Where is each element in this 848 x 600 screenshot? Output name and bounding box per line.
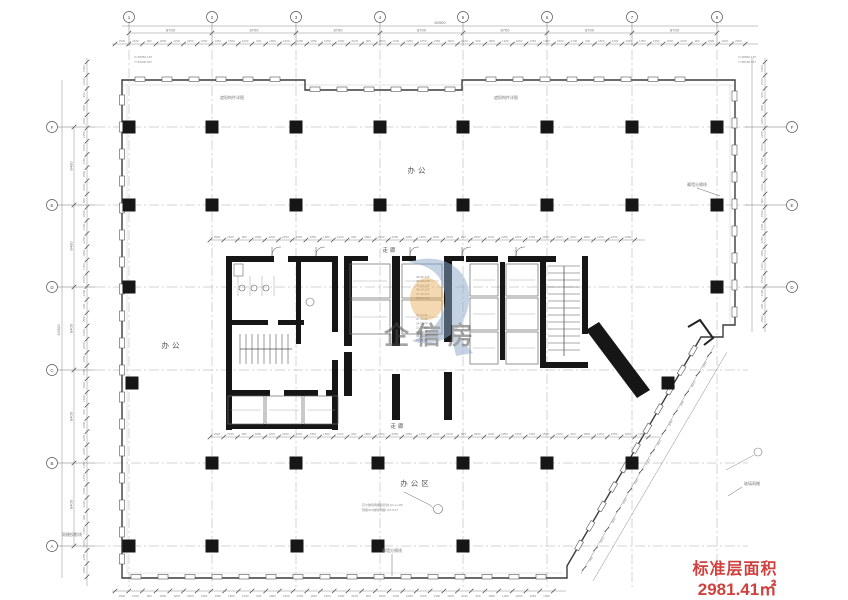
dim-tick-diagonal <box>650 449 655 454</box>
window-left <box>120 176 125 186</box>
window-diagonal <box>597 501 606 512</box>
watermark-flame <box>410 278 444 320</box>
dim-minor-left: 2100 <box>82 78 86 85</box>
dim-minor-left: 2250 <box>82 553 86 560</box>
dim-span-left: 8400 <box>69 161 74 171</box>
dim-minor-top: 900 <box>147 39 152 43</box>
note-corner-tl-1: X=30852.145 <box>134 55 152 59</box>
dim-minor-top: 1500 <box>666 39 673 43</box>
dim-minor-left: 1050 <box>82 567 86 574</box>
door-arc <box>462 247 471 256</box>
window-bottom <box>482 575 492 580</box>
dim-minor-top: 1200 <box>721 39 728 43</box>
column <box>374 121 387 134</box>
dim-minor-left: 1500 <box>82 276 86 283</box>
dim-minor-core: 1350 <box>309 235 316 239</box>
window-right <box>732 253 737 263</box>
dim-minor-bottom: 2100 <box>461 594 468 598</box>
dim-line-diagonal <box>593 352 727 581</box>
dim-minor-left: 900 <box>82 515 86 520</box>
dim-minor-core: 1500 <box>433 235 440 239</box>
core-wall <box>466 256 498 262</box>
dim-minor-core: 1200 <box>597 432 604 436</box>
dim-minor-top: 2100 <box>351 39 358 43</box>
toilet-fixture <box>239 285 245 291</box>
window-top-recess <box>418 87 428 92</box>
column <box>126 377 139 390</box>
window-bottom <box>509 575 519 580</box>
dim-minor-bottom: 2100 <box>242 594 249 598</box>
dim-minor-core: 1200 <box>378 432 385 436</box>
dim-minor-left: 1350 <box>82 474 86 481</box>
dim-minor-core: 1050 <box>405 432 412 436</box>
axis-label-left: E <box>50 203 53 208</box>
dim-minor-left: 2100 <box>82 289 86 296</box>
dim-minor-bottom: 2100 <box>132 594 139 598</box>
dim-minor-core: 1200 <box>487 432 494 436</box>
window-bottom <box>428 575 438 580</box>
dim-minor-core: 2100 <box>446 235 453 239</box>
note-curtain-divider-right: 幕墙分隔线 <box>687 181 707 187</box>
dim-minor-diagonal: 1350 <box>621 497 628 505</box>
dim-minor-core: 1200 <box>268 235 275 239</box>
window-left <box>120 257 125 267</box>
window-bottom <box>212 575 222 580</box>
column <box>457 199 470 212</box>
dim-minor-core: 1350 <box>309 432 316 436</box>
axis-label-left: B <box>50 461 53 466</box>
window-diagonal <box>609 482 618 493</box>
window-left <box>120 500 125 510</box>
window-left <box>120 446 125 456</box>
dim-minor-left: 2100 <box>82 184 86 191</box>
dim-minor-core: 1050 <box>624 235 631 239</box>
dim-minor-top: 2100 <box>461 39 468 43</box>
dim-minor-core: 1050 <box>624 432 631 436</box>
dim-minor-left: 2250 <box>82 131 86 138</box>
core-wall <box>326 390 338 396</box>
dim-minor-top: 1800 <box>488 39 495 43</box>
column <box>206 199 219 212</box>
window-right <box>732 118 737 128</box>
sink <box>234 264 243 276</box>
dim-minor-top: 2100 <box>680 39 687 43</box>
column <box>206 457 219 470</box>
dim-minor-top: 900 <box>695 39 700 43</box>
room-label-office-top: 办公 <box>408 165 429 175</box>
note-canopy-1: 高大玻璃雨棚投影线 1F(+1.05) <box>362 502 403 507</box>
dim-minor-right: 1800 <box>760 316 764 323</box>
core-wall <box>226 424 338 429</box>
core-wall <box>540 362 588 368</box>
room-label-office-left: 办公 <box>162 340 183 350</box>
core-wall-diagonal <box>586 322 650 398</box>
dim-minor-left: 1350 <box>82 157 86 164</box>
core-wall <box>296 262 301 344</box>
dim-minor-left: 2250 <box>82 342 86 349</box>
dim-minor-left: 1350 <box>82 369 86 376</box>
dim-minor-core: 1050 <box>296 432 303 436</box>
dim-minor-left: 1500 <box>82 65 86 72</box>
dim-minor-left: 1800 <box>82 105 86 112</box>
column <box>123 540 136 553</box>
window-top <box>594 77 604 82</box>
note-bubble <box>434 505 443 514</box>
dim-minor-right: 1050 <box>760 250 764 257</box>
dim-minor-core: 1500 <box>542 432 549 436</box>
dim-tick-diagonal <box>696 371 701 376</box>
window-top <box>216 77 226 82</box>
window-right <box>732 199 737 209</box>
dim-minor-core: 1800 <box>583 235 590 239</box>
dim-minor-left: 1200 <box>82 118 86 125</box>
window-left <box>120 554 125 564</box>
window-bottom <box>158 575 168 580</box>
window-top <box>243 77 253 82</box>
dim-minor-core: 900 <box>242 432 247 436</box>
axis-label-right: E <box>790 203 793 208</box>
window-diagonal <box>575 540 584 551</box>
dim-minor-core: 1350 <box>419 432 426 436</box>
dim-minor-bottom: 1200 <box>283 594 290 598</box>
window-top-recess <box>337 87 347 92</box>
dim-minor-left: 1800 <box>82 316 86 323</box>
dim-minor-right: 1350 <box>760 157 764 164</box>
dim-tick-diagonal <box>684 391 689 396</box>
window-bottom <box>374 575 384 580</box>
floorplan-sheet: 49.80-15F46.60-14F43.40-13F40.20-12F37.0… <box>0 0 848 600</box>
dim-minor-left: 1800 <box>82 421 86 428</box>
dim-minor-left: 900 <box>82 92 86 97</box>
dim-tick-diagonal <box>593 547 598 552</box>
window-bottom <box>347 575 357 580</box>
core-wall <box>344 256 352 346</box>
dim-minor-core: 1500 <box>213 432 220 436</box>
dim-minor-core: 900 <box>351 432 356 436</box>
dim-minor-bottom: 1050 <box>529 594 536 598</box>
window-right <box>732 145 737 155</box>
dim-minor-top: 2250 <box>735 39 742 43</box>
core-wall <box>344 352 352 396</box>
dim-minor-bottom: 1350 <box>324 594 331 598</box>
dim-minor-core: 900 <box>351 235 356 239</box>
dim-tick-diagonal <box>627 488 632 493</box>
dim-minor-right: 1800 <box>760 210 764 217</box>
dim-minor-top: 1500 <box>557 39 564 43</box>
floorplan-drawing: 49.80-15F46.60-14F43.40-13F40.20-12F37.0… <box>0 0 848 600</box>
column <box>290 457 303 470</box>
dim-minor-bottom: 2100 <box>351 594 358 598</box>
core-wall <box>226 320 268 325</box>
dim-minor-bottom: 1800 <box>488 594 495 598</box>
window-top-recess <box>364 87 374 92</box>
dim-minor-left: 1200 <box>82 435 86 442</box>
dim-minor-right: 1050 <box>760 144 764 151</box>
floor-area-label: 标准层面积 <box>691 559 777 578</box>
dim-minor-top: 1050 <box>310 39 317 43</box>
dim-span-top: 8700 <box>166 28 176 33</box>
dim-minor-core: 1200 <box>597 235 604 239</box>
dim-span-left: 8400 <box>69 411 74 421</box>
window-left <box>120 527 125 537</box>
dim-minor-top: 1050 <box>529 39 536 43</box>
core-wall <box>452 256 464 261</box>
dim-minor-left: 2100 <box>82 395 86 402</box>
dim-span-top: 8700 <box>417 28 427 33</box>
dim-minor-core: 2250 <box>282 235 289 239</box>
dim-minor-core: 1200 <box>378 235 385 239</box>
dim-minor-diagonal: 900 <box>588 556 594 563</box>
dim-minor-top: 1050 <box>201 39 208 43</box>
note-canopy-2: 预留GF(玻璃雨棚) 2% 5.47 <box>362 507 398 512</box>
dim-span-top: 8700 <box>501 28 511 33</box>
dim-minor-core: 1350 <box>529 432 536 436</box>
window-top <box>486 77 496 82</box>
door-arc <box>272 247 281 256</box>
dim-minor-top: 900 <box>366 39 371 43</box>
dim-minor-core: 1200 <box>487 235 494 239</box>
dim-minor-top: 2250 <box>297 39 304 43</box>
dim-minor-bottom: 1050 <box>201 594 208 598</box>
dim-minor-top: 1200 <box>502 39 509 43</box>
dim-total-left: 42000 <box>56 324 61 336</box>
window-left <box>120 149 125 159</box>
dim-minor-top: 2100 <box>242 39 249 43</box>
dim-minor-top: 1200 <box>173 39 180 43</box>
toilet-fixture <box>251 285 257 291</box>
dim-minor-core: 900 <box>242 235 247 239</box>
core-wall <box>402 256 416 261</box>
window-bottom <box>536 575 546 580</box>
axis-label-left: F <box>51 125 54 130</box>
window-bottom <box>401 575 411 580</box>
dim-minor-left: 1200 <box>82 329 86 336</box>
column <box>711 199 724 212</box>
note-canopy-left: 雨棚投影线 <box>62 531 82 537</box>
dim-minor-core: 1350 <box>529 235 536 239</box>
dim-span-top: 8700 <box>585 28 595 33</box>
core-wall <box>284 390 318 396</box>
column <box>457 121 470 134</box>
core-wall <box>332 256 338 332</box>
leader-line <box>728 487 742 496</box>
window-right <box>732 226 737 236</box>
column <box>290 121 303 134</box>
dim-minor-left: 1050 <box>82 355 86 362</box>
dim-minor-top: 2100 <box>132 39 139 43</box>
dim-minor-top: 900 <box>585 39 590 43</box>
dim-minor-core: 2100 <box>227 432 234 436</box>
dim-minor-bottom: 1350 <box>543 594 550 598</box>
door-arc <box>316 247 325 256</box>
dim-minor-core: 1050 <box>515 235 522 239</box>
dim-minor-bottom: 1800 <box>379 594 386 598</box>
dim-minor-top: 1350 <box>214 39 221 43</box>
note-corner-tl-2: Y=51206.307 <box>134 60 152 64</box>
dim-minor-core: 2250 <box>501 235 508 239</box>
dim-minor-right: 1500 <box>760 276 764 283</box>
dim-minor-top: 1800 <box>708 39 715 43</box>
dim-minor-top: 1500 <box>118 39 125 43</box>
dim-minor-core: 1200 <box>268 432 275 436</box>
column <box>457 540 470 553</box>
dim-minor-core: 900 <box>461 432 466 436</box>
dim-minor-left: 1050 <box>82 461 86 468</box>
dim-minor-core: 1800 <box>474 235 481 239</box>
watermark-text: 企信房 <box>384 321 480 350</box>
dim-minor-core: 1800 <box>255 235 262 239</box>
dim-minor-top: 1200 <box>612 39 619 43</box>
window-left <box>120 338 125 348</box>
note-corner-tr-1: X=30852.145 <box>738 55 756 59</box>
dim-minor-top: 1500 <box>338 39 345 43</box>
column <box>290 199 303 212</box>
window-diagonal <box>586 520 595 531</box>
column <box>711 281 724 294</box>
window-top <box>648 77 658 82</box>
window-diagonal <box>632 443 641 454</box>
column <box>123 199 136 212</box>
dim-minor-top: 2250 <box>625 39 632 43</box>
window-right <box>732 280 737 290</box>
column <box>541 199 554 212</box>
window-top <box>270 77 280 82</box>
window-left <box>120 365 125 375</box>
window-top <box>567 77 577 82</box>
dim-minor-top: 1350 <box>653 39 660 43</box>
column <box>123 281 136 294</box>
core-wall <box>226 390 270 396</box>
dim-minor-core: 2250 <box>392 432 399 436</box>
core-wall <box>278 320 304 325</box>
window-left <box>120 230 125 240</box>
dim-minor-bottom: 1200 <box>502 594 509 598</box>
dim-minor-bottom: 2250 <box>516 594 523 598</box>
window-right <box>732 91 737 101</box>
window-left <box>120 419 125 429</box>
dim-minor-core: 1800 <box>474 432 481 436</box>
dim-minor-bottom: 1350 <box>434 594 441 598</box>
dim-minor-core: 1500 <box>323 432 330 436</box>
window-diagonal-rect <box>654 404 663 415</box>
core-wall <box>500 262 505 360</box>
dim-minor-left: 2100 <box>82 501 86 508</box>
dim-minor-core: 2100 <box>337 235 344 239</box>
window-left <box>120 473 125 483</box>
column <box>374 199 387 212</box>
dim-minor-left: 900 <box>82 303 86 308</box>
window-top <box>189 77 199 82</box>
dim-minor-bottom: 1200 <box>173 594 180 598</box>
dim-minor-core: 2250 <box>501 432 508 436</box>
window-diagonal <box>654 404 663 415</box>
dim-minor-core: 1800 <box>583 432 590 436</box>
dim-minor-core: 2250 <box>282 432 289 436</box>
dim-minor-core: 1500 <box>542 235 549 239</box>
window-top <box>162 77 172 82</box>
note-corner-tr-2: Y=58100.957 <box>738 60 756 64</box>
dim-minor-bottom: 900 <box>147 594 152 598</box>
dim-minor-core: 900 <box>570 432 575 436</box>
dim-minor-core: 1500 <box>323 235 330 239</box>
dim-minor-top: 1200 <box>392 39 399 43</box>
column <box>662 377 675 390</box>
dim-minor-core: 2250 <box>611 235 618 239</box>
column <box>541 457 554 470</box>
dim-minor-right: 2100 <box>760 184 764 191</box>
note-glass-canopy: 玻璃雨棚 <box>744 480 760 486</box>
dim-minor-core: 900 <box>570 235 575 239</box>
column <box>457 457 470 470</box>
dim-minor-bottom: 2250 <box>187 594 194 598</box>
window-top-recess <box>391 87 401 92</box>
dim-minor-left: 1200 <box>82 223 86 230</box>
dim-minor-bottom: 2250 <box>406 594 413 598</box>
dim-minor-bottom: 1200 <box>392 594 399 598</box>
column <box>626 457 639 470</box>
core-wall <box>352 256 368 261</box>
door-arc <box>516 247 525 256</box>
dim-minor-bottom: 1800 <box>269 594 276 598</box>
survey-mark <box>754 448 762 456</box>
dim-minor-right: 2100 <box>760 78 764 85</box>
core-wall <box>226 256 232 430</box>
window-diagonal-rect <box>609 482 618 493</box>
column <box>206 121 219 134</box>
column <box>626 199 639 212</box>
dim-minor-top: 1350 <box>324 39 331 43</box>
window-diagonal-rect <box>632 443 641 454</box>
window-top-recess <box>310 87 320 92</box>
dim-minor-core: 2100 <box>556 235 563 239</box>
dim-minor-core: 2100 <box>227 235 234 239</box>
dim-minor-core: 2100 <box>556 432 563 436</box>
axis-label-left: A <box>50 544 53 549</box>
window-right <box>732 307 737 317</box>
dim-minor-right: 900 <box>760 92 764 97</box>
dim-span-left: 8400 <box>69 323 74 333</box>
window-bottom <box>455 575 465 580</box>
dim-minor-left: 2250 <box>82 448 86 455</box>
dim-tick-diagonal <box>662 430 667 435</box>
room-label-office-bottom: 办公区 <box>400 478 432 488</box>
dim-minor-top: 2250 <box>406 39 413 43</box>
window-top <box>675 77 685 82</box>
dim-tick-diagonal <box>616 508 621 513</box>
survey-leader <box>726 455 754 470</box>
standard-floor-area: 标准层面积 2981.41㎡ <box>691 559 777 599</box>
note-shade-detail-2: 遮阳构件详图 <box>494 94 518 100</box>
core-wall <box>508 256 556 262</box>
dim-minor-core: 2250 <box>611 432 618 436</box>
dim-tick-diagonal <box>639 469 644 474</box>
dim-minor-core: 1500 <box>433 432 440 436</box>
dim-minor-left: 1050 <box>82 144 86 151</box>
dim-minor-diagonal: 2250 <box>644 458 651 466</box>
dim-span-top: 8700 <box>670 28 680 33</box>
dim-minor-core: 2100 <box>337 432 344 436</box>
window-right <box>732 172 737 182</box>
dim-minor-bottom: 1800 <box>160 594 167 598</box>
dim-minor-left: 1500 <box>82 382 86 389</box>
dim-minor-bottom: 1050 <box>420 594 427 598</box>
dim-tick-diagonal <box>707 352 712 357</box>
dim-minor-diagonal: 1050 <box>633 477 640 485</box>
dim-minor-right: 1200 <box>760 223 764 230</box>
dim-tick-diagonal <box>582 566 587 571</box>
dim-tick-diagonal <box>673 410 678 415</box>
column <box>372 457 385 470</box>
